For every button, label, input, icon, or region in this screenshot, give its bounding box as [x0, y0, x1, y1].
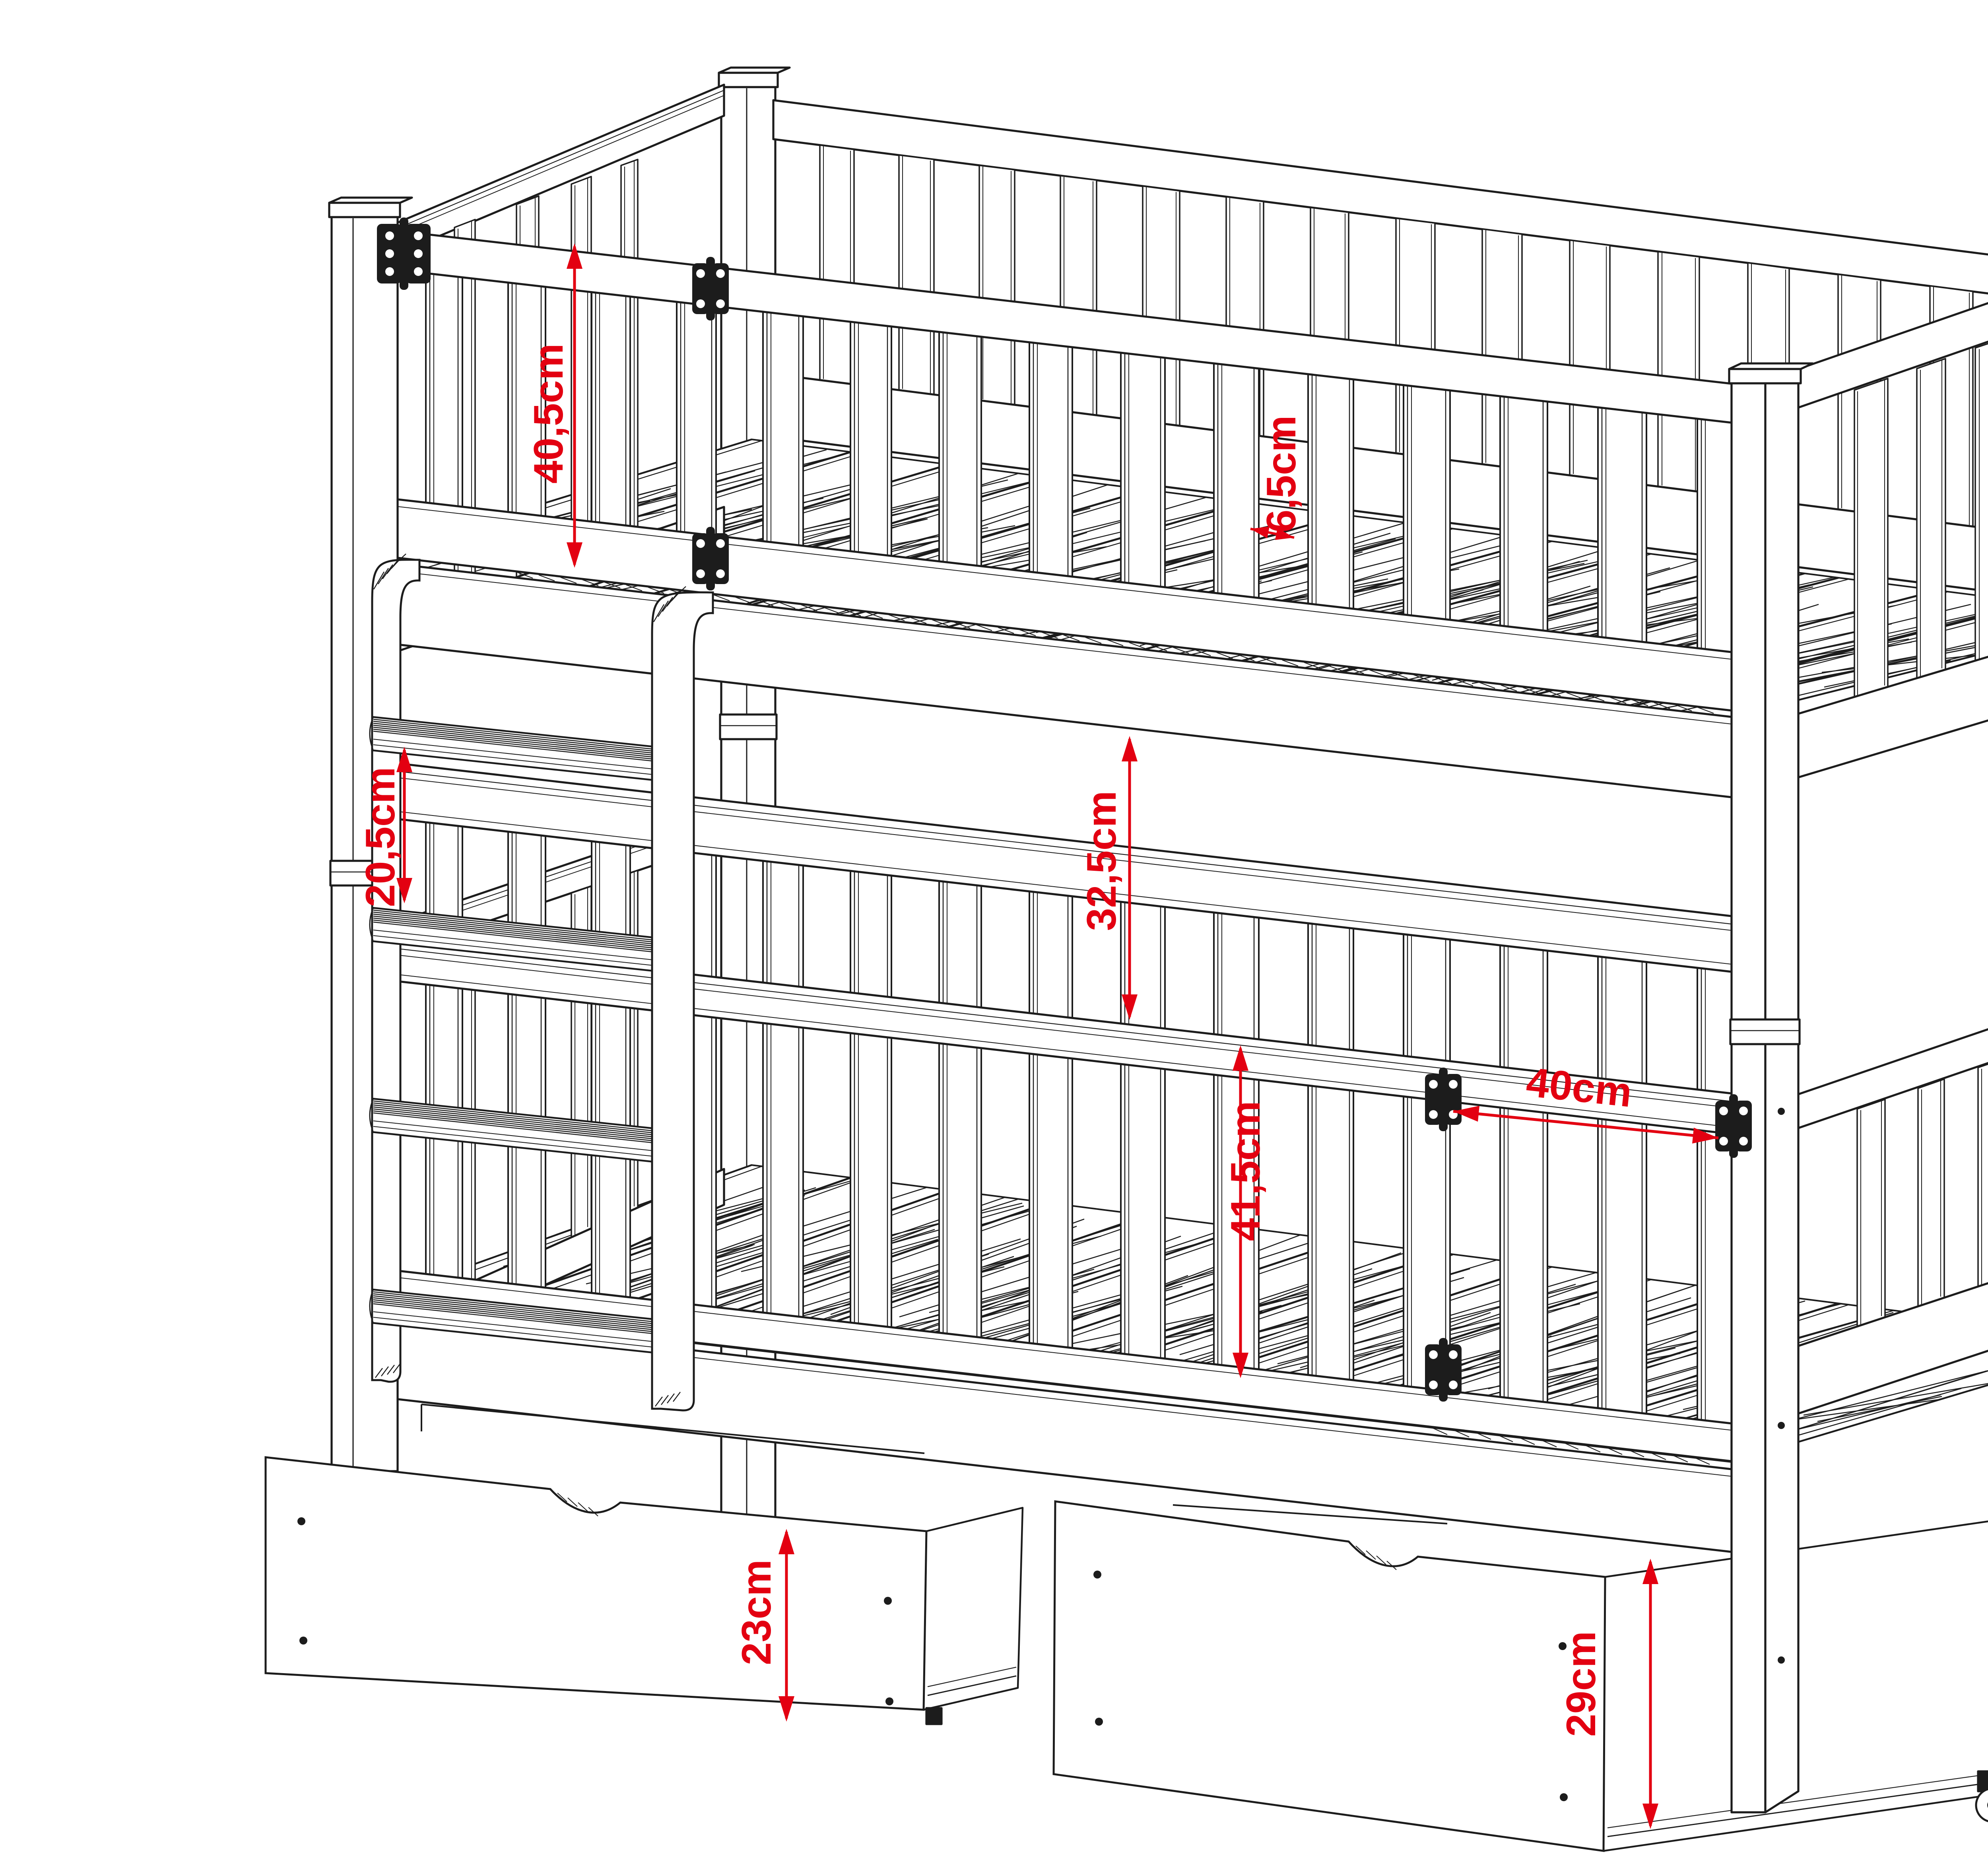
svg-text:23cm: 23cm — [734, 1559, 780, 1665]
svg-text:40,5cm: 40,5cm — [526, 344, 572, 484]
svg-text:41,5cm: 41,5cm — [1223, 1101, 1269, 1241]
svg-text:20,5cm: 20,5cm — [357, 767, 404, 907]
svg-text:6,5cm: 6,5cm — [1258, 416, 1305, 533]
svg-text:32,5cm: 32,5cm — [1079, 791, 1125, 931]
svg-text:29cm: 29cm — [1558, 1631, 1604, 1737]
